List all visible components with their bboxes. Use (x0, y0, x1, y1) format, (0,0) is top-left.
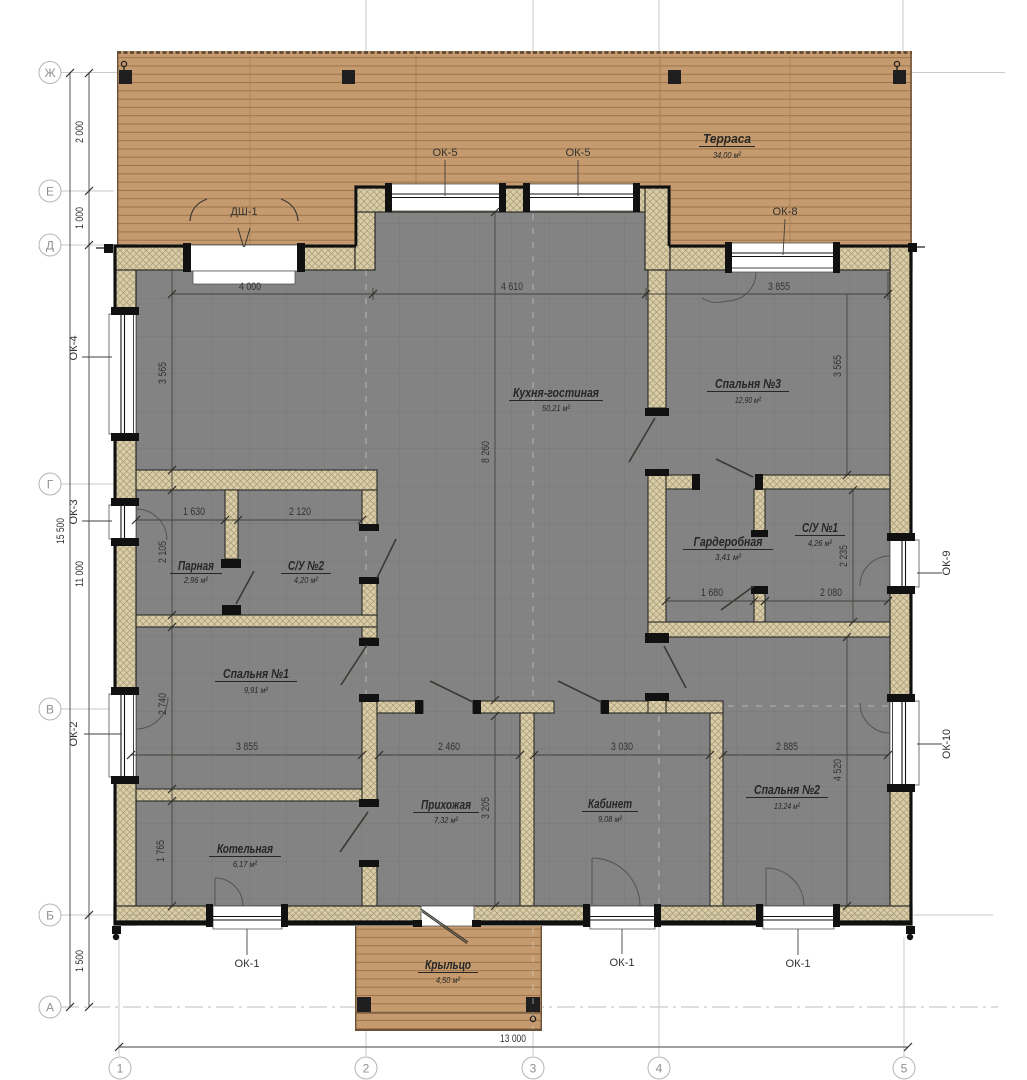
svg-text:ОК-2: ОК-2 (68, 722, 80, 747)
svg-text:ОК-3: ОК-3 (68, 500, 80, 525)
svg-text:2 120: 2 120 (289, 506, 311, 518)
svg-text:8 260: 8 260 (480, 441, 492, 463)
svg-text:1: 1 (117, 1062, 124, 1076)
svg-text:4 000: 4 000 (239, 281, 261, 293)
svg-text:9,91 м²: 9,91 м² (244, 685, 269, 695)
svg-text:3: 3 (530, 1062, 537, 1076)
svg-text:ОК-10: ОК-10 (941, 729, 953, 759)
svg-text:Котельная: Котельная (217, 841, 273, 856)
svg-text:2: 2 (363, 1062, 370, 1076)
svg-text:ОК-8: ОК-8 (773, 206, 798, 218)
svg-text:Прихожая: Прихожая (421, 797, 471, 812)
svg-text:12,90 м²: 12,90 м² (735, 395, 762, 405)
svg-text:Спальня №3: Спальня №3 (715, 376, 782, 391)
svg-text:34,00 м²: 34,00 м² (713, 150, 742, 160)
svg-text:ДШ-1: ДШ-1 (231, 206, 258, 218)
svg-text:6,17 м²: 6,17 м² (233, 859, 258, 869)
svg-text:Спальня №2: Спальня №2 (754, 782, 821, 797)
svg-text:3 855: 3 855 (768, 281, 790, 293)
svg-text:Крыльцо: Крыльцо (425, 957, 471, 972)
svg-text:ОК-1: ОК-1 (610, 957, 635, 969)
svg-text:2 460: 2 460 (438, 741, 460, 753)
svg-text:Парная: Парная (178, 558, 214, 573)
svg-text:2 740: 2 740 (157, 693, 169, 715)
svg-text:13 000: 13 000 (500, 1033, 526, 1045)
svg-text:А: А (46, 1001, 54, 1015)
svg-text:Ж: Ж (44, 66, 55, 80)
svg-text:50,21 м²: 50,21 м² (542, 403, 571, 413)
svg-text:ОК-4: ОК-4 (68, 336, 80, 361)
svg-text:Г: Г (47, 478, 54, 492)
svg-text:7,32 м²: 7,32 м² (434, 815, 459, 825)
svg-text:15 500: 15 500 (55, 518, 67, 544)
svg-text:Е: Е (46, 185, 54, 199)
svg-text:3 855: 3 855 (236, 741, 258, 753)
svg-text:ОК-1: ОК-1 (235, 958, 260, 970)
svg-text:Кухня-гостиная: Кухня-гостиная (513, 385, 599, 400)
svg-text:2,96 м²: 2,96 м² (183, 575, 209, 585)
svg-text:4,50 м²: 4,50 м² (436, 975, 461, 985)
svg-text:11 000: 11 000 (74, 561, 86, 587)
svg-text:Спальня №1: Спальня №1 (223, 666, 289, 681)
svg-text:1 000: 1 000 (74, 207, 86, 229)
svg-text:2 105: 2 105 (157, 541, 169, 563)
svg-text:4,20 м²: 4,20 м² (294, 575, 319, 585)
svg-text:В: В (46, 703, 54, 717)
svg-text:4,26 м²: 4,26 м² (808, 538, 833, 548)
svg-text:3 205: 3 205 (480, 797, 492, 819)
svg-text:4: 4 (656, 1062, 663, 1076)
svg-text:Д: Д (46, 239, 54, 253)
svg-text:13,24 м²: 13,24 м² (774, 801, 801, 811)
svg-text:2 885: 2 885 (776, 741, 798, 753)
svg-text:1 680: 1 680 (701, 587, 723, 599)
svg-text:1 630: 1 630 (183, 506, 205, 518)
svg-text:ОК-5: ОК-5 (433, 147, 458, 159)
svg-text:5: 5 (901, 1062, 908, 1076)
svg-text:ОК-9: ОК-9 (941, 551, 953, 576)
svg-text:3 030: 3 030 (611, 741, 633, 753)
svg-text:9,08 м²: 9,08 м² (598, 814, 623, 824)
svg-text:3 565: 3 565 (832, 355, 844, 377)
svg-text:2 000: 2 000 (74, 121, 86, 143)
svg-text:1 500: 1 500 (74, 950, 86, 972)
svg-text:С/У №1: С/У №1 (802, 520, 838, 535)
svg-text:Терраса: Терраса (703, 131, 751, 146)
svg-text:Гардеробная: Гардеробная (694, 534, 763, 549)
svg-text:2 235: 2 235 (838, 545, 850, 567)
svg-text:ОК-5: ОК-5 (566, 147, 591, 159)
svg-text:Б: Б (46, 909, 54, 923)
svg-text:1 765: 1 765 (155, 840, 167, 862)
svg-text:4 610: 4 610 (501, 281, 523, 293)
svg-text:Кабинет: Кабинет (588, 796, 632, 811)
svg-text:3 565: 3 565 (157, 362, 169, 384)
svg-text:4 520: 4 520 (832, 759, 844, 781)
svg-text:С/У №2: С/У №2 (288, 558, 325, 573)
svg-text:ОК-1: ОК-1 (786, 958, 811, 970)
svg-text:2 080: 2 080 (820, 587, 842, 599)
svg-text:3,41 м²: 3,41 м² (715, 552, 742, 562)
